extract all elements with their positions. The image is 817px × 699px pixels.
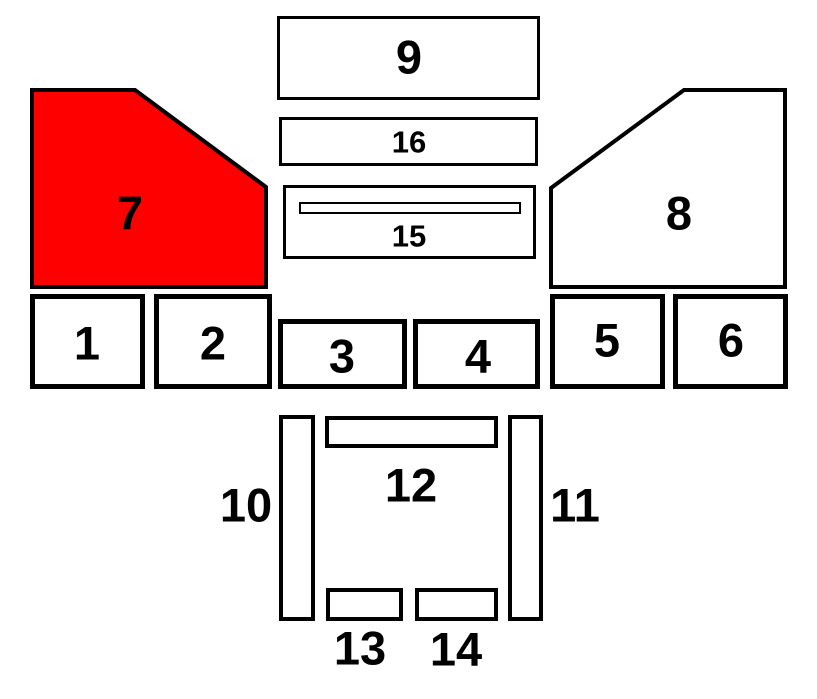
part-6-label: 6	[718, 317, 744, 364]
part-7-shape[interactable]	[32, 90, 266, 287]
part-15-slot	[299, 202, 521, 214]
part-8-label: 8	[666, 190, 692, 237]
parts-diagram: 1 2 3 4 5 6 7 8 9 10 11 12 13 14 15 16	[0, 0, 817, 699]
part-15-label: 15	[392, 221, 426, 252]
part-10-label: 10	[220, 482, 272, 529]
part-1-label: 1	[74, 320, 100, 367]
part-14-shape[interactable]	[415, 588, 498, 621]
part-11-label: 11	[550, 482, 600, 529]
part-11-shape[interactable]	[508, 415, 543, 621]
part-14-label: 14	[430, 626, 482, 673]
part-12-label: 12	[385, 462, 437, 509]
part-4-label: 4	[465, 333, 491, 380]
part-7-label: 7	[117, 190, 143, 237]
part-2-label: 2	[200, 320, 226, 367]
part-10-shape[interactable]	[279, 415, 315, 621]
part-9-label: 9	[396, 34, 422, 81]
part-13-label: 13	[334, 625, 386, 672]
part-5-label: 5	[594, 317, 620, 364]
part-3-label: 3	[329, 333, 355, 380]
part-13-shape[interactable]	[326, 588, 403, 621]
part-12-shape[interactable]	[325, 416, 498, 448]
part-16-label: 16	[392, 127, 426, 158]
